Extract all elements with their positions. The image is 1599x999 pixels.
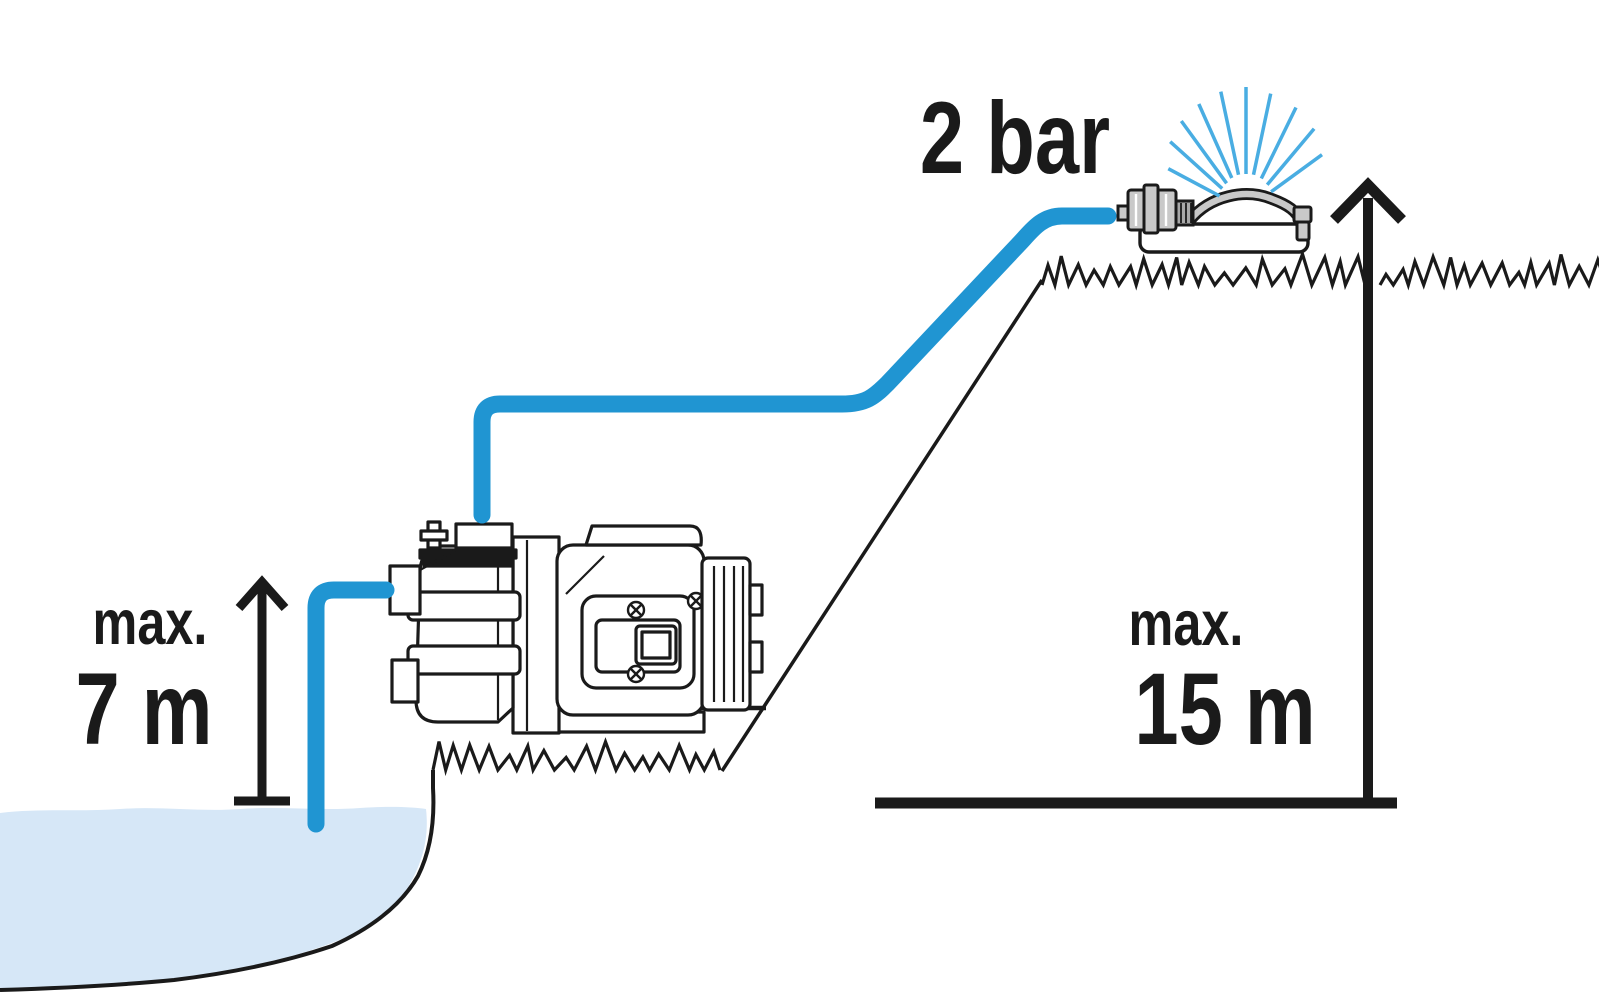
suction-hose [316,590,386,824]
diagram-artwork [0,0,1599,999]
garden-pump-icon-part [421,531,447,540]
grass-upper-left [1042,254,1365,285]
oscillating-sprinkler-icon-part-part [1294,207,1311,222]
garden-pump-icon-part [586,526,701,545]
grass-upper-right [1380,255,1599,286]
garden-pump-icon-part [456,524,512,548]
pond-water-icon [0,770,433,990]
delivery-hose [482,216,1108,515]
garden-pump-icon-part [513,537,559,733]
delivery-max-label: max. [1066,593,1306,656]
suction-height-label: 7 m [27,658,261,760]
pump-height-diagram: 2 bar max. 7 m max. 15 m [0,0,1599,999]
garden-pump-icon-part [392,660,418,702]
garden-pump-icon-part [642,632,670,658]
hillside-line [722,280,1042,771]
garden-pump-icon-part [424,561,512,566]
garden-pump-icon-part [750,642,762,672]
pressure-label: 2 bar [898,87,1132,189]
garden-pump-icon-part [408,592,520,620]
oscillating-sprinkler-icon-part-part [1297,222,1309,240]
water-spray-icon [1168,87,1322,196]
garden-pump-icon-part [420,550,516,558]
delivery-height-label: 15 m [1108,658,1342,760]
garden-pump-icon-part [408,646,520,674]
garden-pump-icon-part [750,585,762,615]
garden-pump-icon [390,522,766,733]
suction-max-label: max. [30,592,270,655]
oscillating-sprinkler-icon-part-part [1144,185,1158,233]
grass-lower [433,742,720,770]
water-fill [0,807,427,990]
